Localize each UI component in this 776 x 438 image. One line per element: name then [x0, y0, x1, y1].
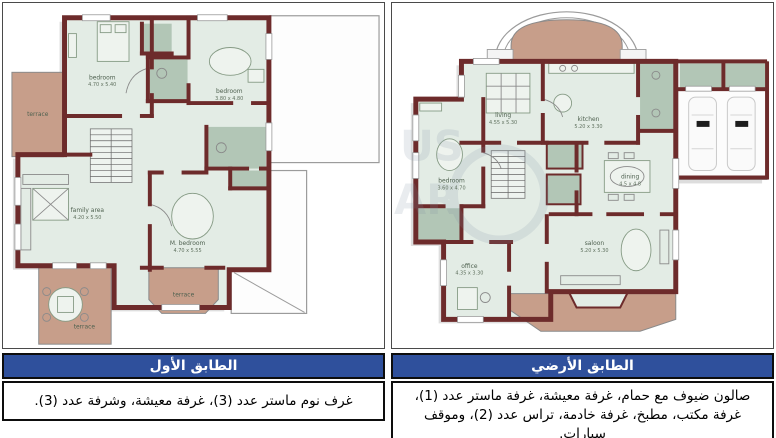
room-label-terrace-bottom-center: terrace [173, 292, 195, 299]
two-column-layout: bedroom 4.70 x 5.40 bedroom 3.80 x 4.80 … [0, 0, 776, 438]
first-floor-caption-title: الطابق الأول [2, 353, 385, 379]
ground-floor-column: US AR living 4.55 x 5.30 kitchen 5.20 x … [391, 2, 774, 438]
room-label-kitchen: kitchen [578, 116, 600, 123]
room-label-bedroom: bedroom [438, 177, 465, 184]
first-floor-caption-body: غرف نوم ماستر عدد (3)، غرفة معيشة، وشرفة… [2, 381, 385, 421]
room-dims-bedroom-1: 4.70 x 5.40 [88, 82, 116, 88]
room-dims-master-bedroom: 4.70 x 5.55 [173, 248, 201, 254]
ground-floor-plan-svg: US AR living 4.55 x 5.30 kitchen 5.20 x … [392, 3, 773, 348]
room-dims-kitchen: 5.20 x 3.30 [574, 124, 602, 130]
room-label-master-bedroom: M. bedroom [170, 240, 206, 247]
room-dims-saloon: 5.20 x 5.30 [580, 248, 608, 254]
page: bedroom 4.70 x 5.40 bedroom 3.80 x 4.80 … [0, 0, 776, 438]
room-dims-living: 4.55 x 5.30 [489, 120, 517, 126]
room-label-dining: dining [621, 173, 640, 180]
car [727, 97, 755, 170]
ground-floor-caption-body: صالون ضيوف مع حمام، غرفة معيشة، غرفة ماس… [391, 381, 774, 438]
room-label-terrace-left: terrace [27, 111, 49, 118]
room-label-living: living [495, 112, 511, 119]
room-label-bedroom-1: bedroom [89, 74, 116, 81]
first-floor-column: bedroom 4.70 x 5.40 bedroom 3.80 x 4.80 … [2, 2, 385, 438]
room-dims-bedroom: 3.60 x 4.70 [437, 185, 465, 191]
staircase [90, 129, 132, 183]
ground-floor-caption-title: الطابق الأرضي [391, 353, 774, 379]
room-label-family-area: family area [71, 207, 105, 214]
garage [678, 61, 767, 179]
room-label-terrace-bottom-left: terrace [74, 323, 96, 330]
room-dims-office: 4.35 x 3.30 [455, 271, 483, 277]
room-dims-family-area: 4.20 x 5.50 [73, 215, 101, 221]
room-label-saloon: saloon [585, 240, 605, 247]
room-label-bedroom-2: bedroom [216, 88, 243, 95]
entrance-porch [487, 12, 646, 62]
room-label-office: office [461, 263, 478, 270]
ground-floor-plan-image: US AR living 4.55 x 5.30 kitchen 5.20 x … [391, 2, 774, 349]
watermark-text-1: US [400, 122, 464, 171]
first-floor-plan-image: bedroom 4.70 x 5.40 bedroom 3.80 x 4.80 … [2, 2, 385, 349]
car [689, 97, 717, 170]
room-dims-bedroom-2: 3.80 x 4.80 [215, 96, 243, 102]
first-floor-plan-svg: bedroom 4.70 x 5.40 bedroom 3.80 x 4.80 … [3, 3, 384, 348]
room-dims-dining: 4.5 x 4.8 [619, 181, 641, 187]
